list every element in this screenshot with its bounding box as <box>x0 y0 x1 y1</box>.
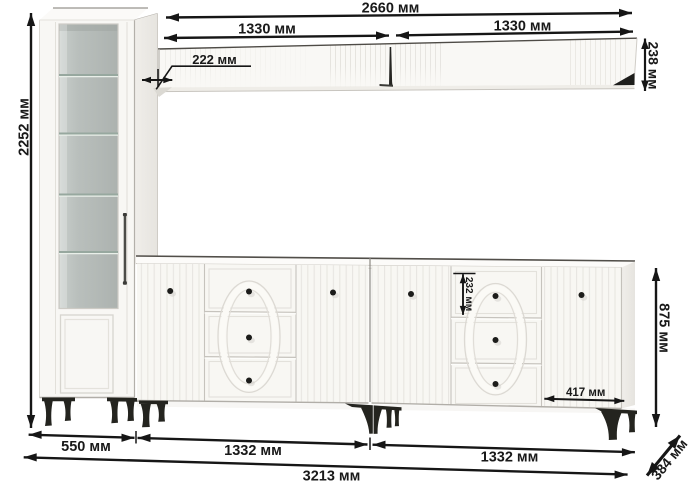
svg-text:1332 мм: 1332 мм <box>224 443 282 459</box>
svg-text:1330 мм: 1330 мм <box>238 22 296 38</box>
svg-text:550 мм: 550 мм <box>61 439 111 455</box>
svg-text:222 мм: 222 мм <box>192 52 237 67</box>
svg-text:238 мм: 238 мм <box>646 42 662 90</box>
svg-text:417 мм: 417 мм <box>566 387 605 399</box>
svg-text:232 мм: 232 мм <box>463 277 474 311</box>
svg-text:3213 мм: 3213 мм <box>303 469 361 485</box>
svg-text:875 мм: 875 мм <box>656 303 672 353</box>
svg-text:2660 мм: 2660 мм <box>362 1 420 17</box>
svg-text:1332 мм: 1332 мм <box>481 450 539 466</box>
svg-text:1330 мм: 1330 мм <box>494 19 552 35</box>
svg-text:2252 мм: 2252 мм <box>17 98 33 156</box>
